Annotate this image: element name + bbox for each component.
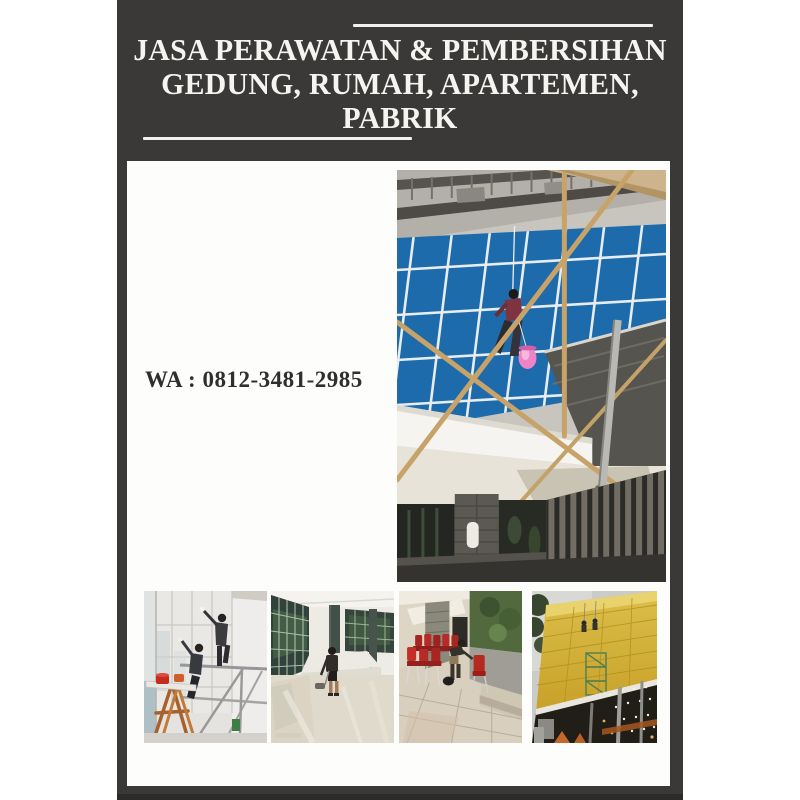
photo-facade-glass-cleaning [397, 170, 666, 582]
black-bucket [443, 677, 454, 686]
title-line-3: PABRIK [128, 101, 671, 135]
photo-marble-floor-polishing [271, 591, 394, 743]
title-line-2: GEDUNG, RUMAH, APARTEMEN, [128, 67, 671, 101]
floor-polishing-illustration [271, 591, 394, 743]
floor-polisher-machine [315, 683, 325, 689]
interior-cleaning-illustration [144, 591, 267, 743]
gold-facade-illustration [532, 591, 657, 743]
facade-cleaning-illustration [397, 170, 666, 582]
flyer-poster: JASA PERAWATAN & PEMBERSIHAN GEDUNG, RUM… [117, 0, 683, 800]
decorative-line-top [353, 24, 653, 27]
photo-gold-facade-cleaning [532, 591, 657, 743]
content-panel: WA : 0812-3481-2985 [127, 161, 670, 786]
chair-cleaning-illustration [399, 591, 522, 743]
decorative-line-bottom [143, 137, 412, 140]
poster-title: JASA PERAWATAN & PEMBERSIHAN GEDUNG, RUM… [128, 33, 671, 135]
photo-chair-cleaning [399, 591, 522, 743]
poster-bottom-edge [117, 794, 683, 800]
photo-interior-glass-cleaning [144, 591, 267, 743]
title-line-1: JASA PERAWATAN & PEMBERSIHAN [128, 33, 671, 67]
whatsapp-contact: WA : 0812-3481-2985 [145, 367, 363, 393]
red-bucket [156, 673, 169, 684]
wall-lamp [467, 522, 479, 548]
